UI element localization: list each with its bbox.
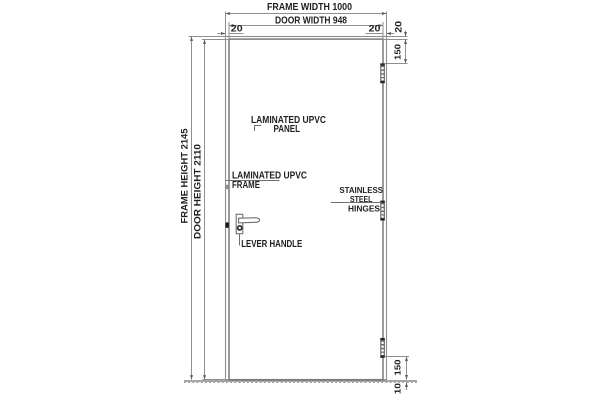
svg-text:DOOR HEIGHT 2110: DOOR HEIGHT 2110 [193, 144, 203, 239]
svg-text:PANEL: PANEL [274, 124, 301, 135]
svg-text:FRAME WIDTH 1000: FRAME WIDTH 1000 [267, 2, 352, 13]
svg-text:LEVER HANDLE: LEVER HANDLE [241, 239, 302, 250]
svg-text:150: 150 [393, 43, 402, 60]
svg-text:150: 150 [394, 359, 403, 376]
svg-text:DOOR WIDTH 948: DOOR WIDTH 948 [275, 16, 347, 27]
svg-text:FRAME: FRAME [232, 180, 260, 191]
svg-text:HINGES: HINGES [348, 203, 380, 213]
svg-text:20: 20 [369, 23, 381, 34]
svg-text:FRAME HEIGHT 2145: FRAME HEIGHT 2145 [179, 129, 189, 224]
svg-text:20: 20 [231, 23, 243, 34]
svg-text:20: 20 [393, 21, 404, 33]
svg-text:10: 10 [394, 382, 403, 394]
